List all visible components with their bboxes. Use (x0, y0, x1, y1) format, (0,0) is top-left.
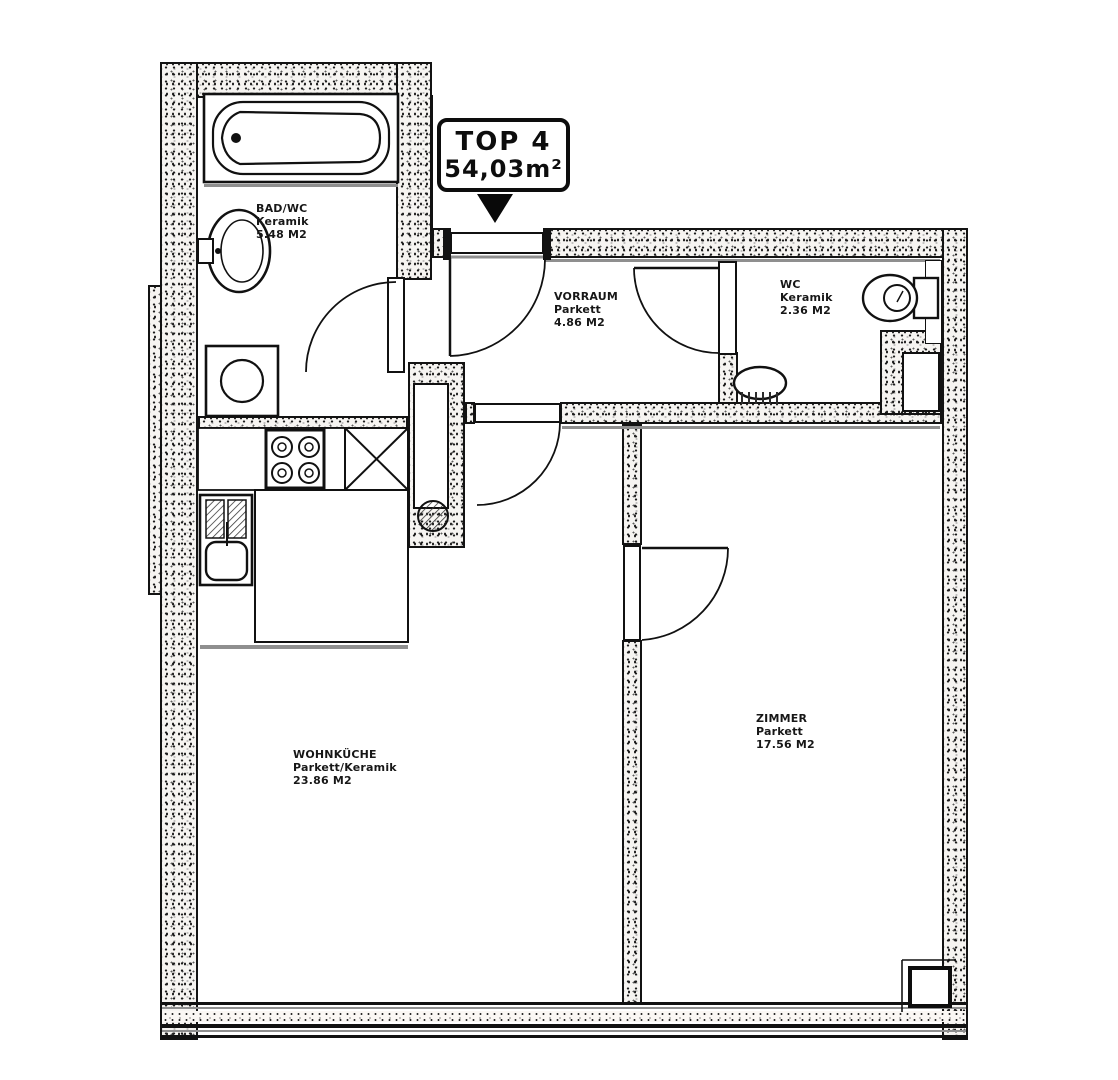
gray-line-top-wall (545, 259, 940, 262)
bath-door-swing-icon (306, 278, 404, 372)
room-area: 4.86 M2 (554, 316, 618, 329)
wc-door-swing-icon (634, 262, 736, 354)
window-band-speckle (162, 1011, 966, 1022)
gray-line-kitchen-block (200, 645, 408, 649)
room-label-wc: WC Keramik 2.36 M2 (780, 278, 833, 317)
cabinet-x-icon (345, 428, 408, 490)
washing-machine-icon (206, 346, 278, 416)
room-name: WC (780, 278, 833, 291)
kitchen-counter (198, 428, 408, 490)
wall-room-partition-upper (622, 424, 642, 545)
room-area: 5.48 M2 (256, 228, 309, 241)
wc-wall-niche (902, 352, 940, 412)
room-label-zimmer: ZIMMER Parkett 17.56 M2 (756, 712, 815, 751)
wall-room-partition-lower (622, 640, 642, 1005)
stove-hob-icon (266, 430, 324, 488)
window-band-line-4 (162, 1030, 966, 1032)
gray-line-mid-wall (562, 426, 940, 429)
window-band-line-2 (162, 1007, 966, 1009)
wall-top-main (545, 228, 968, 258)
wall-bath-right (396, 62, 432, 280)
kitchen-block (255, 490, 408, 642)
wall-right (942, 228, 968, 1040)
floor-plan: TOP 4 54,03m² BAD/WC Keramik 5.48 M2 VOR… (0, 0, 1118, 1080)
wc-washbasin-icon (734, 367, 786, 404)
room-floor: Parkett/Keramik (293, 761, 397, 774)
unit-title-box: TOP 4 54,03m² (437, 118, 570, 192)
wall-service-shaft (408, 362, 465, 548)
room-name: WOHNKÜCHE (293, 748, 397, 761)
corner-column (908, 966, 952, 1008)
window-band-line-5 (162, 1035, 966, 1038)
room-area: 23.86 M2 (293, 774, 397, 787)
window-band-line-1 (162, 1002, 966, 1005)
room-label-vorraum: VORRAUM Parkett 4.86 M2 (554, 290, 618, 329)
gray-line-under-tub (204, 184, 398, 187)
wall-left-bump (148, 285, 162, 595)
wall-left (160, 62, 198, 1040)
kitchen-sink-icon (200, 495, 252, 585)
outline-entry-recess (430, 95, 433, 231)
room-label-bad: BAD/WC Keramik 5.48 M2 (256, 202, 309, 241)
room-floor: Keramik (780, 291, 833, 304)
wall-bath-top (160, 62, 432, 98)
room-area: 2.36 M2 (780, 304, 833, 317)
wall-wc-partition (718, 352, 738, 408)
room-floor: Keramik (256, 215, 309, 228)
room-name: ZIMMER (756, 712, 815, 725)
room-floor: Parkett (756, 725, 815, 738)
bathtub-icon (204, 94, 398, 182)
entrance-door-icon (443, 228, 551, 356)
room-name: BAD/WC (256, 202, 309, 215)
room-area: 17.56 M2 (756, 738, 815, 751)
room-label-wohnkueche: WOHNKÜCHE Parkett/Keramik 23.86 M2 (293, 748, 397, 787)
unit-area: 54,03m² (444, 156, 562, 182)
unit-number: TOP 4 (455, 128, 551, 156)
hall-door-swing-icon (475, 404, 560, 505)
entrance-pointer-icon (477, 194, 513, 223)
wall-bath-bottom (198, 416, 408, 429)
window-band-line-3 (162, 1024, 966, 1028)
wall-mid-post (465, 402, 475, 424)
wall-entry-left-post (432, 228, 448, 258)
room-name: VORRAUM (554, 290, 618, 303)
zimmer-door-swing-icon (624, 546, 728, 640)
wc-right-strip (925, 260, 942, 344)
room-floor: Parkett (554, 303, 618, 316)
